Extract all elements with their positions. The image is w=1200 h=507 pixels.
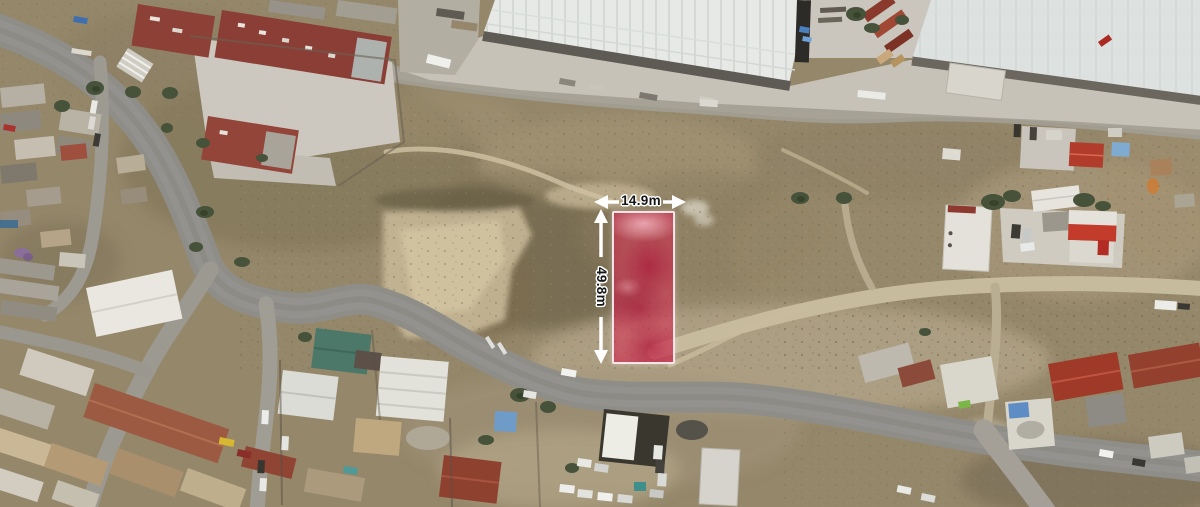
junk-pile xyxy=(406,426,450,450)
blue-tarp xyxy=(494,411,517,432)
blue-tarp xyxy=(1111,142,1130,157)
red-roof-house xyxy=(1069,142,1104,168)
red-roof-large xyxy=(439,455,502,504)
dumpster xyxy=(634,482,646,491)
grey-building xyxy=(699,448,740,506)
aerial-imagery xyxy=(0,0,1200,507)
white-ribbed-roof xyxy=(376,356,449,422)
white-canopy xyxy=(602,413,638,460)
parcel-highlight xyxy=(612,211,675,364)
satellite-map[interactable]: 14.9m 49.8m xyxy=(0,0,1200,507)
silver-roof xyxy=(278,370,339,420)
blue-tarp xyxy=(0,220,18,228)
height-dimension-label: 49.8m xyxy=(594,267,608,307)
white-patio xyxy=(1005,398,1055,450)
width-dimension-label: 14.9m xyxy=(621,194,661,208)
junk-heap xyxy=(676,420,708,440)
blue-tarp xyxy=(1008,402,1029,419)
red-roof-building xyxy=(1067,210,1117,264)
white-building xyxy=(943,205,992,271)
dirt-yard xyxy=(353,418,402,456)
